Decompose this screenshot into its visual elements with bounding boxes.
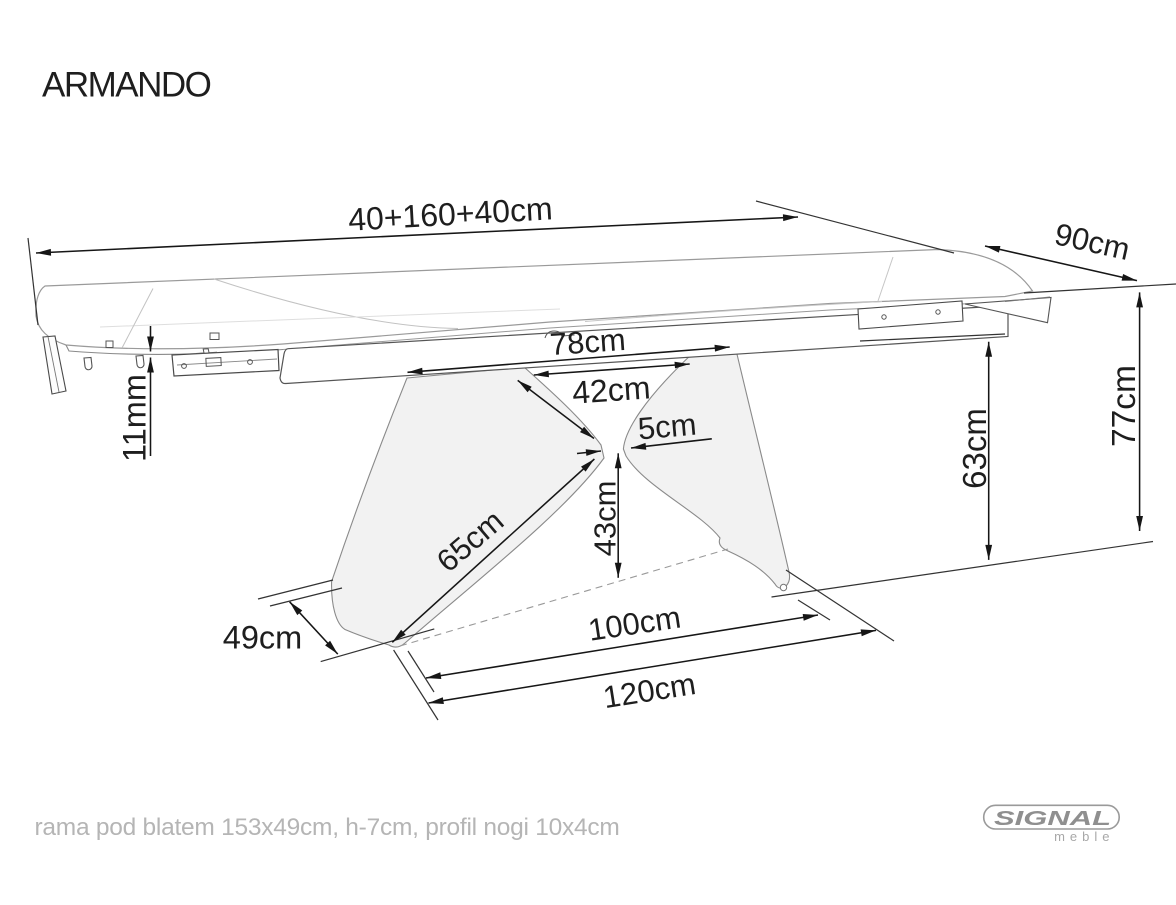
svg-text:meble: meble bbox=[1054, 829, 1114, 844]
svg-text:63cm: 63cm bbox=[956, 408, 993, 489]
svg-text:ARMANDO: ARMANDO bbox=[42, 66, 211, 105]
svg-text:5cm: 5cm bbox=[636, 407, 697, 447]
svg-text:42cm: 42cm bbox=[571, 369, 652, 410]
svg-text:78cm: 78cm bbox=[549, 322, 627, 362]
svg-text:77cm: 77cm bbox=[1106, 365, 1143, 447]
svg-text:43cm: 43cm bbox=[588, 481, 623, 557]
svg-text:49cm: 49cm bbox=[223, 620, 302, 656]
svg-text:11mm: 11mm bbox=[117, 374, 153, 462]
svg-text:rama pod blatem 153x49cm, h-7c: rama pod blatem 153x49cm, h-7cm, profil … bbox=[35, 814, 620, 841]
svg-text:SIGNAL: SIGNAL bbox=[994, 807, 1111, 830]
